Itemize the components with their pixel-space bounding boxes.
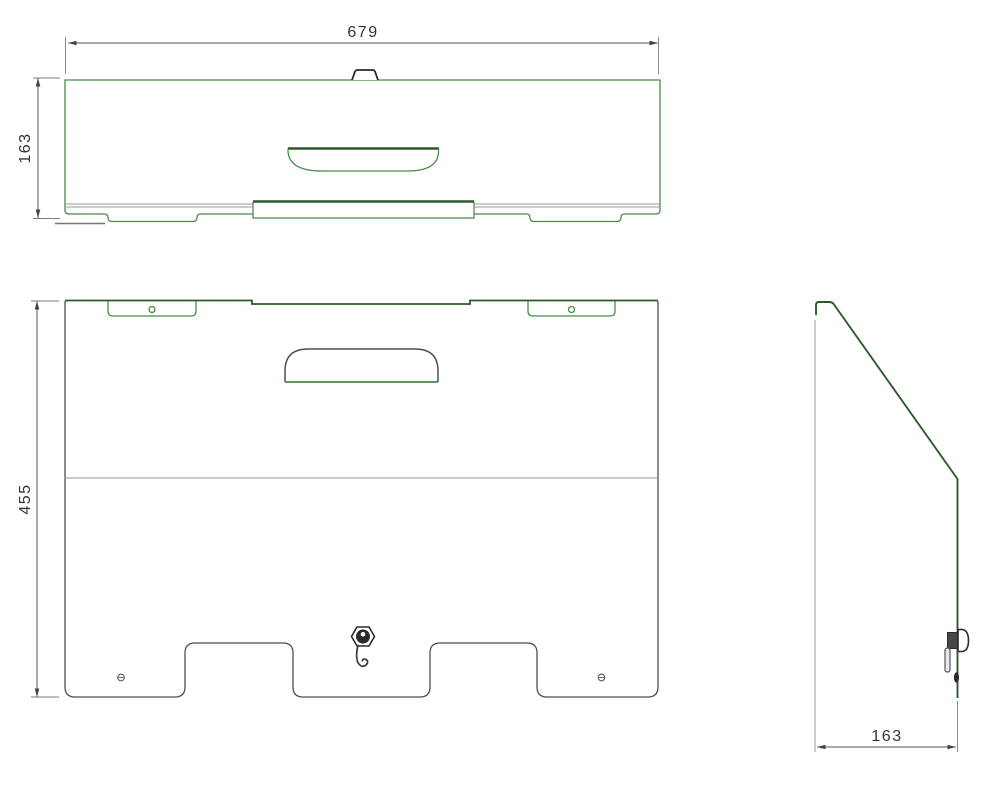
arrowhead-left bbox=[68, 41, 77, 46]
dim-label-front-height: 455 bbox=[17, 483, 34, 514]
dim-label-side-depth: 163 bbox=[871, 728, 902, 745]
dim-label-top-width: 679 bbox=[347, 24, 378, 41]
arrowhead-right bbox=[650, 41, 659, 46]
top-view-body-outline bbox=[65, 80, 660, 222]
extension-lines bbox=[31, 301, 59, 697]
front-view-right-bracket bbox=[528, 301, 615, 316]
side-view: 163 bbox=[815, 302, 969, 752]
top-view-height-dimension: 163 bbox=[17, 78, 60, 219]
lock-keyhole bbox=[361, 632, 366, 637]
front-view: 455 bbox=[17, 301, 658, 698]
side-view-depth-dimension: 163 bbox=[817, 701, 958, 752]
extension-lines bbox=[33, 78, 60, 219]
lock-side-body bbox=[948, 633, 958, 649]
top-view-latch-tab bbox=[352, 70, 378, 80]
drawing-canvas: 679 163 bbox=[0, 0, 1000, 790]
dim-label-top-height: 163 bbox=[17, 132, 34, 163]
front-view-cam-lock bbox=[352, 627, 375, 666]
front-view-left-bracket bbox=[108, 301, 196, 316]
arrowhead-bottom bbox=[36, 210, 41, 219]
front-view-left-hole bbox=[118, 674, 125, 681]
arrowhead-left bbox=[817, 745, 826, 750]
lock-cam-hook bbox=[357, 646, 368, 667]
top-view-width-dimension: 679 bbox=[66, 24, 659, 74]
lock-side-cam-rod bbox=[945, 648, 950, 672]
front-view-handle-curve bbox=[285, 349, 438, 382]
arrowhead-top bbox=[35, 301, 40, 310]
arrowhead-right bbox=[948, 745, 957, 750]
front-view-left-bracket-hole bbox=[149, 307, 155, 313]
top-view: 679 163 bbox=[17, 24, 660, 224]
arrowhead-top bbox=[36, 78, 41, 87]
lock-side-nut bbox=[954, 672, 959, 682]
side-view-profile bbox=[816, 302, 958, 698]
front-view-height-dimension: 455 bbox=[17, 301, 59, 697]
top-view-center-recess bbox=[253, 202, 474, 218]
front-view-right-hole bbox=[598, 674, 605, 681]
front-view-right-bracket-hole bbox=[569, 307, 575, 313]
lock-side-bracket bbox=[958, 630, 969, 652]
top-view-sheet-edge-lines bbox=[65, 204, 660, 207]
technical-drawing: 679 163 bbox=[0, 0, 1000, 790]
arrowhead-bottom bbox=[35, 689, 40, 698]
top-view-handle-curve bbox=[288, 149, 439, 172]
front-view-top-edge bbox=[65, 301, 658, 305]
